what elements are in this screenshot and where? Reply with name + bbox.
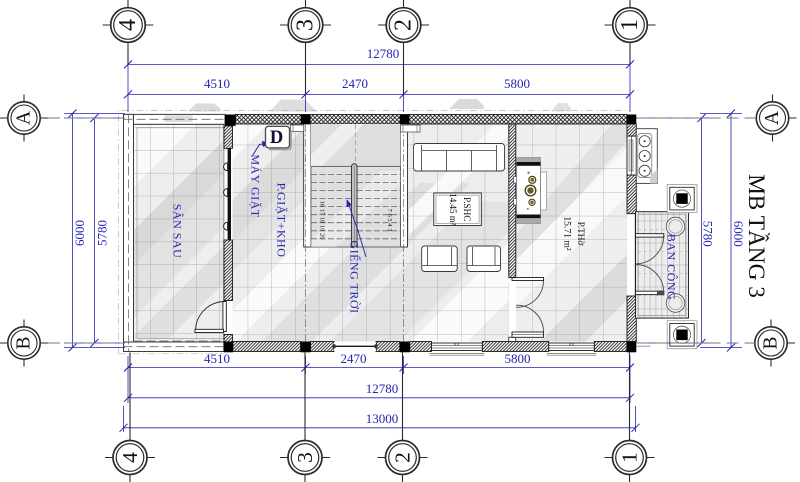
svg-text:13000: 13000 (366, 411, 399, 426)
svg-text:GIẾNG TRỜI: GIẾNG TRỜI (348, 240, 363, 313)
svg-text:MB TẦNG 3: MB TẦNG 3 (743, 174, 770, 298)
svg-text:1: 1 (617, 19, 643, 31)
svg-text:15.71 m²: 15.71 m² (562, 216, 573, 250)
svg-text:2: 2 (391, 452, 415, 463)
svg-text:P.SHC: P.SHC (462, 197, 472, 221)
svg-text:3: 3 (293, 452, 317, 463)
svg-text:5780: 5780 (94, 220, 109, 246)
svg-text:SÂN SAU: SÂN SAU (171, 204, 185, 259)
svg-text:16 17 18 19 20: 16 17 18 19 20 (318, 201, 325, 240)
svg-text:P.THờ: P.THờ (576, 222, 586, 246)
svg-text:P.GIẶT+KHO: P.GIẶT+KHO (275, 183, 289, 258)
svg-text:4510: 4510 (204, 351, 230, 366)
svg-text:12780: 12780 (366, 381, 399, 396)
svg-text:12780: 12780 (367, 46, 400, 61)
svg-text:2: 2 (391, 19, 417, 31)
svg-text:1: 1 (618, 452, 642, 463)
svg-text:14.45 m²: 14.45 m² (448, 193, 458, 226)
svg-text:4: 4 (118, 452, 142, 463)
svg-text:6000: 6000 (72, 220, 87, 246)
svg-text:MÁY GIẶT: MÁY GIẶT (249, 154, 263, 217)
svg-text:4510: 4510 (204, 76, 230, 91)
svg-text:5780: 5780 (701, 221, 716, 247)
svg-text:A: A (14, 111, 35, 125)
svg-text:7 6 5 4 3: 7 6 5 4 3 (386, 209, 393, 232)
svg-text:5800: 5800 (505, 351, 531, 366)
svg-text:BAN CÔNG: BAN CÔNG (665, 234, 679, 300)
svg-text:B: B (761, 336, 782, 349)
svg-text:D: D (270, 128, 283, 148)
svg-text:A: A (762, 111, 783, 125)
svg-text:2470: 2470 (341, 351, 367, 366)
svg-text:4: 4 (115, 19, 141, 31)
svg-text:3: 3 (293, 19, 319, 31)
svg-text:2470: 2470 (342, 76, 368, 91)
svg-text:5800: 5800 (504, 76, 530, 91)
svg-text:B: B (14, 336, 35, 349)
